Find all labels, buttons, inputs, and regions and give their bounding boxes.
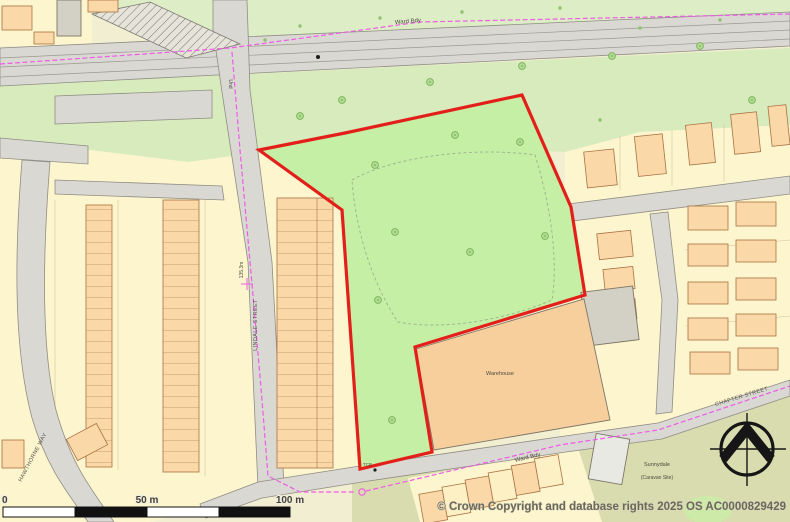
building (688, 244, 728, 266)
spot-height-label: 135.3m (239, 262, 245, 279)
building (88, 0, 118, 12)
building (34, 32, 54, 44)
post-marker-dot (316, 55, 320, 59)
scale-segment (3, 507, 75, 517)
warehouse-label: Warehouse (486, 371, 514, 377)
building (634, 134, 666, 177)
white-building (588, 433, 629, 484)
building (736, 240, 776, 262)
terrace-row-b-divisions (163, 200, 199, 472)
building (736, 278, 776, 300)
building (584, 149, 618, 188)
building (2, 6, 32, 30)
scale-tick-0: 0 (2, 495, 8, 506)
scale-segment (219, 507, 290, 517)
scale-tick-100: 100 m (276, 495, 304, 506)
building (688, 318, 728, 340)
building (534, 455, 563, 489)
building (768, 105, 790, 147)
scale-segment (147, 507, 219, 517)
building (685, 123, 715, 165)
building (690, 352, 730, 374)
site-plan-map: Ward Bdy Ward Bdy Und 135.3m LINDALE STR… (0, 0, 790, 522)
building (738, 348, 778, 370)
scale-segment (75, 507, 147, 517)
building (731, 112, 761, 154)
building (688, 282, 728, 304)
building (2, 440, 24, 468)
building (736, 202, 776, 226)
terrace-row-c-divisions (277, 198, 333, 468)
building (736, 314, 776, 336)
building (57, 0, 81, 36)
street-label-lindale: LINDALE STREET (253, 299, 259, 351)
building (597, 230, 634, 259)
und-label: Und (227, 79, 233, 88)
sunnydale-label: Sunnydale (644, 462, 670, 468)
caravan-site-label: (Caravan Site) (641, 475, 674, 481)
tcb-label: TCB (363, 462, 372, 467)
map-canvas[interactable]: Ward Bdy Ward Bdy Und 135.3m LINDALE STR… (0, 0, 790, 522)
layby-strip (55, 90, 212, 124)
building (688, 206, 728, 230)
copyright-attribution: © Crown Copyright and database rights 20… (437, 501, 786, 513)
scale-tick-50: 50 m (136, 495, 159, 506)
tcb-marker-dot (373, 468, 376, 471)
